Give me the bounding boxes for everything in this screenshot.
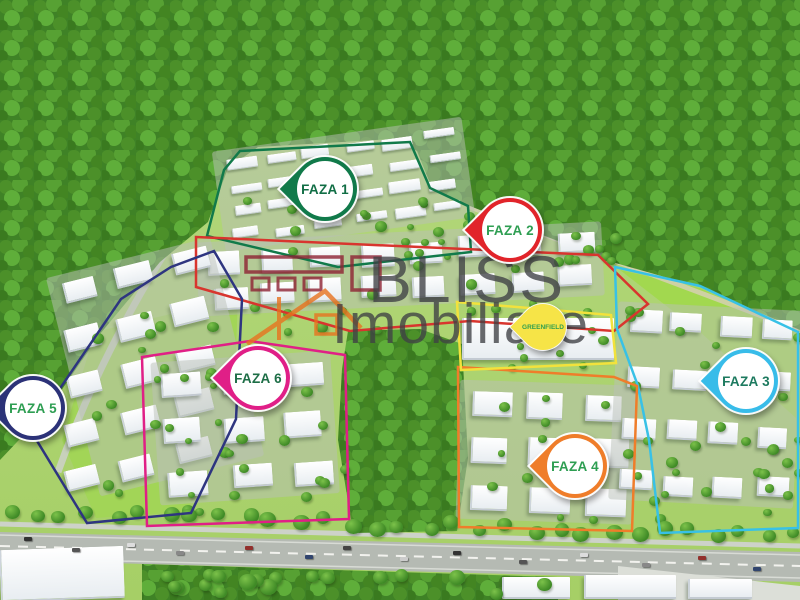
car bbox=[400, 557, 408, 561]
car bbox=[305, 555, 313, 559]
pin-label: FAZA 6 bbox=[234, 371, 282, 386]
pin-label: FAZA 5 bbox=[9, 401, 57, 416]
pin-label: FAZA 2 bbox=[486, 223, 534, 238]
pin-faza-5[interactable]: FAZA 5 bbox=[0, 370, 73, 462]
car bbox=[343, 546, 351, 550]
car bbox=[519, 560, 527, 564]
car bbox=[453, 551, 461, 555]
pin-faza-6[interactable]: FAZA 6 bbox=[218, 340, 298, 432]
pin-greenfield[interactable]: GREENFIELD bbox=[513, 299, 573, 365]
car bbox=[245, 546, 253, 550]
car bbox=[642, 563, 650, 567]
car bbox=[127, 543, 135, 547]
car bbox=[72, 548, 80, 552]
pin-faza-3[interactable]: FAZA 3 bbox=[706, 343, 786, 435]
pin-label: FAZA 4 bbox=[551, 459, 599, 474]
pin-label: GREENFIELD bbox=[522, 324, 564, 331]
car bbox=[698, 556, 706, 560]
pin-label: FAZA 3 bbox=[722, 374, 770, 389]
pin-faza-2[interactable]: FAZA 2 bbox=[470, 192, 550, 284]
car bbox=[176, 551, 184, 555]
car bbox=[753, 567, 761, 571]
car bbox=[580, 553, 588, 557]
pin-label: FAZA 1 bbox=[301, 182, 349, 197]
masterplan-render: BLISS Imobiliare FAZA 1FAZA 2FAZA 3FAZA … bbox=[0, 0, 800, 600]
pin-faza-4[interactable]: FAZA 4 bbox=[535, 428, 615, 520]
car bbox=[24, 537, 32, 541]
pin-faza-1[interactable]: FAZA 1 bbox=[285, 151, 365, 243]
traffic-layer bbox=[0, 0, 800, 600]
